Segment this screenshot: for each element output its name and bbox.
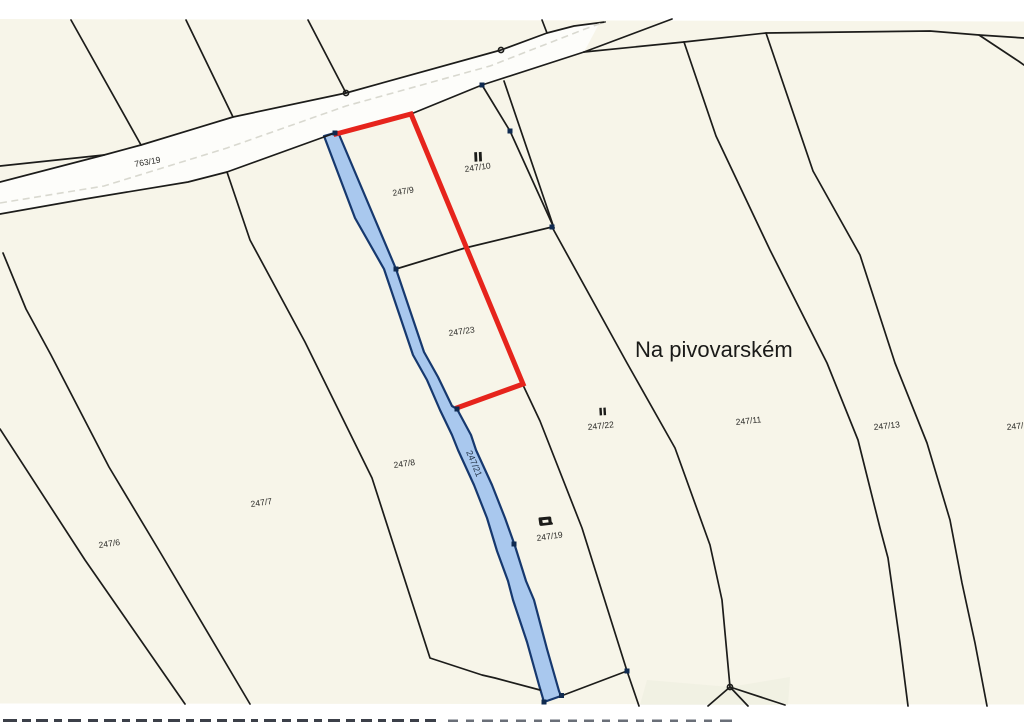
svg-text:247/1: 247/1 — [1006, 420, 1024, 432]
svg-text:Na pivovarském: Na pivovarském — [635, 337, 793, 362]
